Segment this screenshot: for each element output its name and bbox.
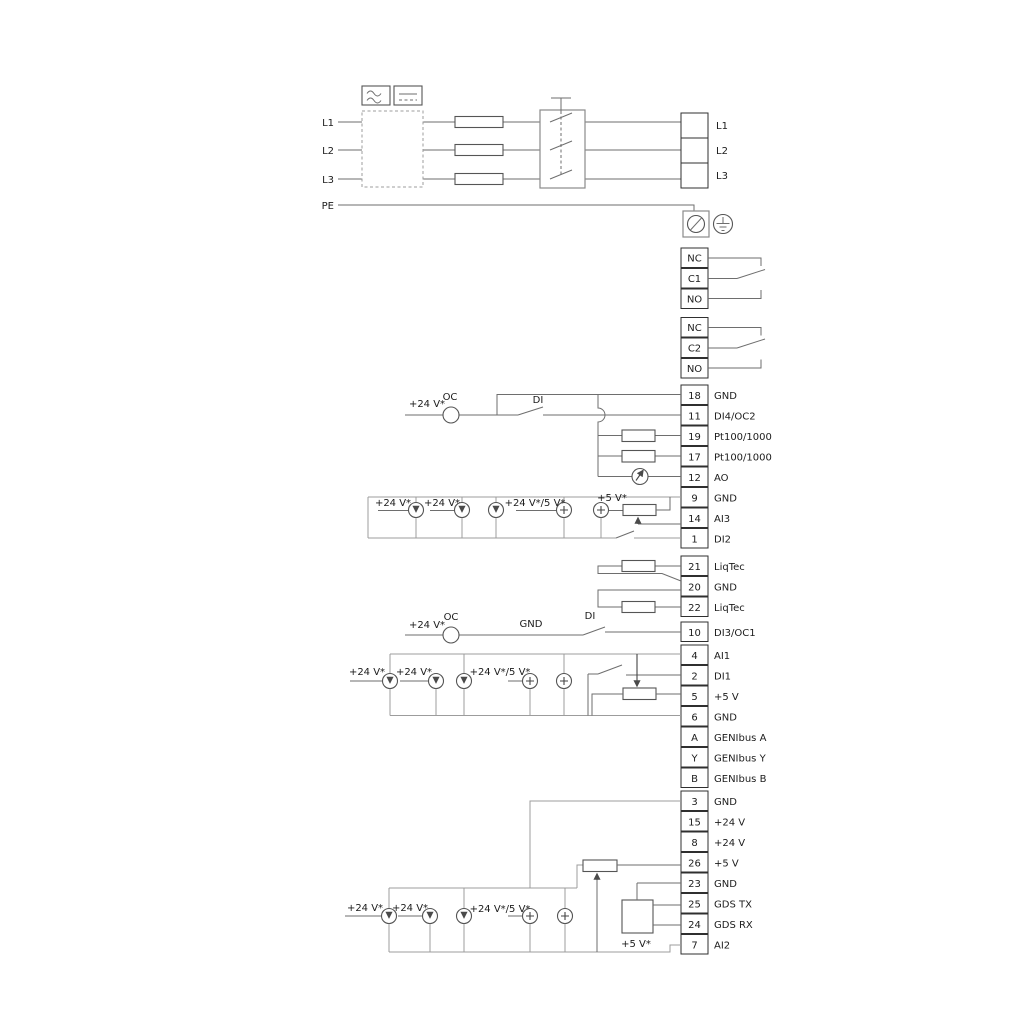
relay2-contact-blade [737,339,765,348]
di2-switch-blade [616,531,634,538]
terminal-number: 5 [691,692,697,703]
annotation-di: DI [533,395,544,406]
annotation-24v: +24 V* [349,667,385,678]
terminal-label: +24 V [714,817,745,828]
mains-output-label: L1 [716,121,728,132]
terminal-number: 6 [691,712,697,723]
ai2-section: 3 15 8 26 23 25 24 7 GND +24 V +24 V +5 … [345,791,753,954]
terminal-label: GND [714,493,737,504]
relay-terminal-label: C1 [688,274,701,285]
di3-switch-blade [583,627,605,635]
terminal-number: 7 [691,940,697,951]
annotation-oc: OC [443,392,458,403]
voltage-source-icon [594,503,609,518]
annotation-di: DI [585,611,596,622]
terminal-number: 21 [688,562,701,573]
annotation-24v: +24 V* [396,667,432,678]
terminal-label: DI1 [714,671,731,682]
mains-input-label: L1 [322,118,334,129]
open-collector-icon [443,407,459,423]
current-source-icon [489,503,504,518]
liqtec-wiring [598,566,681,607]
open-collector-icon [443,627,459,643]
annotation-oc: OC [444,612,459,623]
terminal-label: AO [714,473,729,484]
terminal-label: AI1 [714,651,730,662]
terminal-number: 14 [688,514,701,525]
terminal-number: Y [690,753,698,764]
terminal-number: 19 [688,432,701,443]
filter-box [362,111,423,187]
terminal-label: DI4/OC2 [714,411,756,422]
wiring-diagram-page: L1 L2 L3 PE L1 L2 L3 NC C1 NO NC C2 NO [0,0,1024,1024]
ai3-section: 9 14 1 GND AI3 DI2 +24 V* +24 V* +24 V*/… [368,488,737,549]
terminal-number: A [691,733,698,744]
terminal-number: 2 [691,671,697,682]
disconnect-switch-box [540,110,585,188]
fuse-l1 [455,117,503,128]
annotation-5v: +5 V* [621,939,651,950]
terminal-number: 18 [688,391,701,402]
terminal-label: DI3/OC1 [714,628,756,639]
mains-output-label: L2 [716,146,728,157]
relay-terminal-label: NC [687,323,701,334]
annotation-24v: +24 V* [409,399,445,410]
terminal-label: AI2 [714,940,730,951]
resistor [622,430,655,442]
voltage-source-icon [558,909,573,924]
mains-input-label: PE [322,201,334,212]
annotation-24v-5v: +24 V*/5 V* [470,667,531,678]
mains-terminal [681,113,708,138]
terminal-label: LiqTec [714,603,745,614]
terminal-label: +24 V [714,838,745,849]
terminal-number: 1 [691,534,697,545]
annotation-24v-5v: +24 V*/5 V* [505,498,566,509]
di1-switch-blade [598,665,622,674]
relay2-wiring [708,328,761,369]
terminal-number: 26 [688,858,701,869]
relay-terminal-label: NC [687,254,701,265]
terminal-number: 22 [688,603,701,614]
annotation-5v: +5 V* [597,493,627,504]
annotation-gnd: GND [520,619,543,630]
di-switch-blade [518,407,543,415]
di-box-wiring [497,395,681,416]
annotation-24v: +24 V* [392,903,428,914]
terminal-number: 12 [688,473,701,484]
relay-terminal-label: C2 [688,344,701,355]
annotation-24v: +24 V* [409,620,445,631]
terminal-label: LiqTec [714,562,745,573]
terminal-number: 20 [688,582,701,593]
relay2-section: NC C2 NO [681,318,765,379]
ao-meter-icon [632,469,648,485]
terminal-label: GDS TX [714,899,752,910]
terminal-number: B [691,774,698,785]
gds-sensor-box [622,900,653,933]
annotation-24v: +24 V* [347,903,383,914]
annotation-24v: +24 V* [424,498,460,509]
voltage-source-icon [557,674,572,689]
resistor [622,451,655,463]
relay1-section: NC C1 NO [681,248,765,309]
terminal-number: 11 [688,411,701,422]
gnd3-wiring [530,801,681,888]
mains-terminal [681,138,708,163]
terminal-label: GENIbus A [714,733,767,744]
mains-wiring [338,122,694,211]
terminal-label: GND [714,582,737,593]
io-top-section: 18 11 19 17 12 GND DI4/OC2 Pt100/1000 Pt… [405,385,772,487]
mains-output-label: L3 [716,171,728,182]
relay-terminal-label: NO [687,295,702,306]
ai1-section: 4 2 5 6 A Y B AI1 DI1 +5 V GND GENIbus A… [349,645,767,788]
terminal-number: 23 [688,879,701,890]
potentiometer [583,860,617,872]
terminal-label: GENIbus Y [714,753,767,764]
potentiometer [623,688,656,700]
annotation-24v: +24 V* [375,498,411,509]
fuse-l2 [455,145,503,156]
resistor [622,561,655,572]
mains-terminal [681,163,708,188]
fuse-l3 [455,174,503,185]
relay1-wiring [708,258,761,299]
terminal-number: 3 [691,797,697,808]
terminal-label: GND [714,712,737,723]
relay1-contact-blade [737,270,765,279]
resistor [622,602,655,613]
relay-terminal-label: NO [687,364,702,375]
terminal-number: 17 [688,452,701,463]
mains-section: L1 L2 L3 PE L1 L2 L3 [322,86,733,237]
terminal-label: Pt100/1000 [714,432,772,443]
dc-symbol-box [394,86,422,105]
terminal-number: 24 [688,920,701,931]
mains-input-label: L3 [322,175,334,186]
terminal-number: 9 [691,493,697,504]
terminal-number: 15 [688,817,701,828]
terminal-label: AI3 [714,514,730,525]
terminal-number: 4 [691,651,697,662]
terminal-label: Pt100/1000 [714,452,772,463]
mains-input-label: L2 [322,146,334,157]
terminal-label: +5 V [714,692,739,703]
terminal-label: +5 V [714,858,739,869]
terminal-label: GENIbus B [714,774,767,785]
terminal-label: GDS RX [714,920,753,931]
liqtec-section: 21 20 22 LiqTec GND LiqTec [598,556,745,617]
terminal-label: DI2 [714,534,731,545]
wiring-diagram: L1 L2 L3 PE L1 L2 L3 NC C1 NO NC C2 NO [0,0,1024,1024]
terminal-label: GND [714,879,737,890]
terminal-label: GND [714,391,737,402]
terminal-number: 10 [688,628,701,639]
terminal-label: GND [714,797,737,808]
terminal-number: 8 [691,838,697,849]
terminal-number: 25 [688,899,701,910]
potentiometer [623,505,656,516]
switch-handle [551,98,571,111]
annotation-24v-5v: +24 V*/5 V* [470,904,531,915]
